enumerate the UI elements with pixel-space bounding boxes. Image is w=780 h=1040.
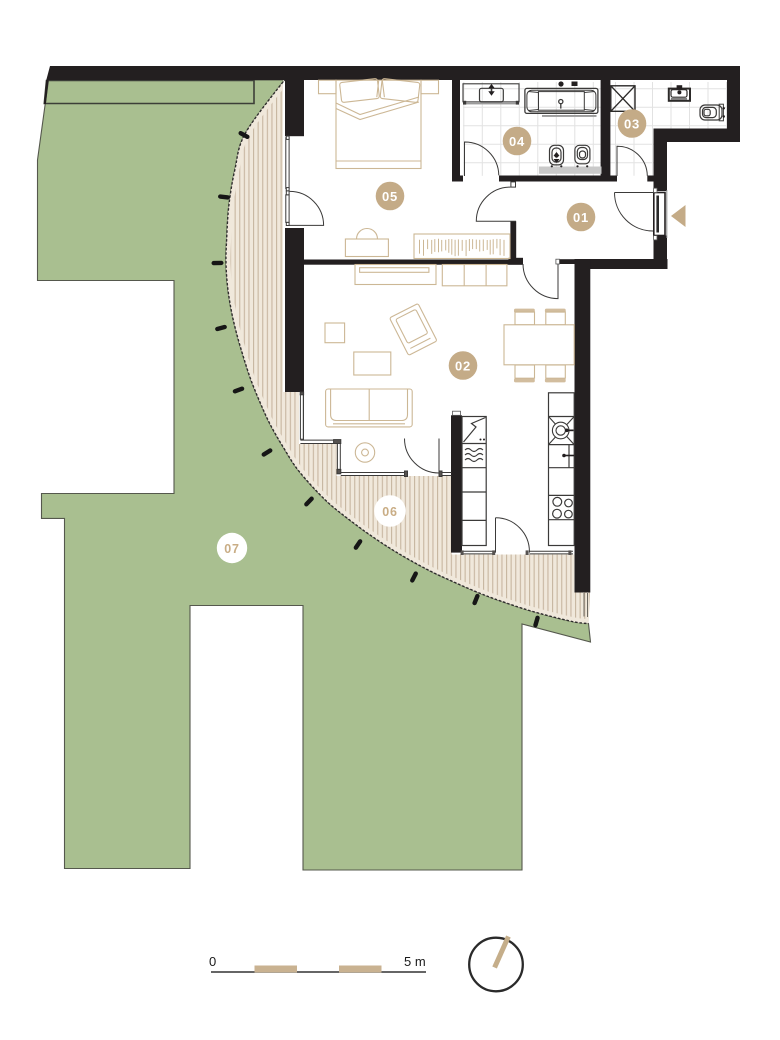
svg-text:02: 02 — [455, 358, 471, 373]
svg-text:03: 03 — [624, 116, 640, 131]
svg-text:06: 06 — [382, 505, 398, 519]
svg-text:01: 01 — [573, 210, 589, 225]
svg-text:5 m: 5 m — [404, 954, 426, 969]
svg-text:05: 05 — [382, 189, 398, 204]
svg-text:0: 0 — [209, 954, 216, 969]
svg-text:04: 04 — [509, 134, 525, 149]
svg-text:07: 07 — [224, 542, 240, 556]
